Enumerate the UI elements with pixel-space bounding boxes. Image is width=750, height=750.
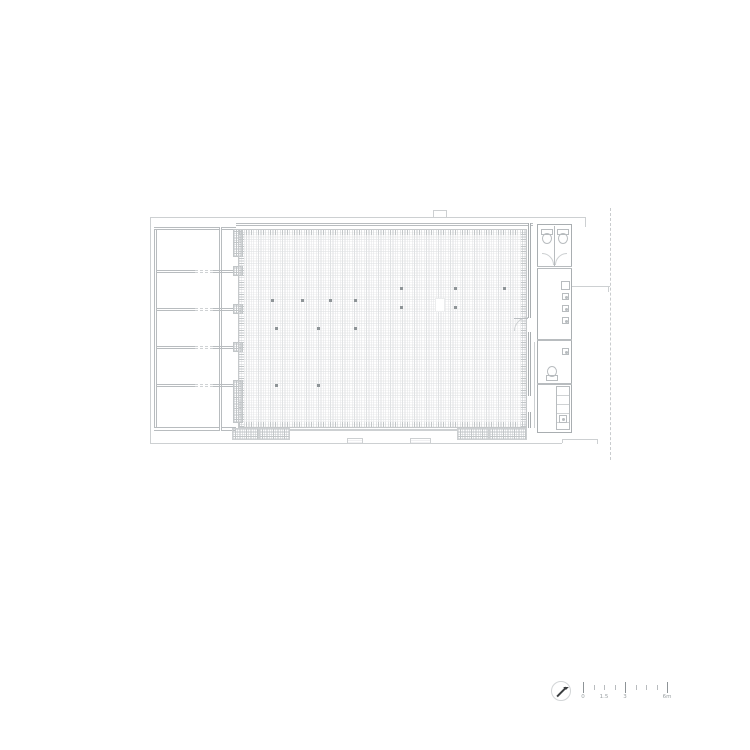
storage-wall [537, 383, 572, 385]
washroom-wall [537, 339, 572, 341]
scale-tick-major [583, 682, 584, 693]
site-outline-bottom-right [562, 439, 597, 440]
toilet-icon [557, 229, 567, 243]
hall-floor-hatch [238, 229, 527, 428]
entry-pad [347, 438, 363, 444]
column-dot [400, 306, 403, 309]
facade-block [457, 428, 489, 440]
facade-block [489, 428, 527, 440]
toilet-icon [548, 367, 558, 381]
column-dot [271, 299, 274, 302]
toilet-icon [541, 229, 551, 243]
scale-tick-minor [604, 685, 605, 690]
north-arrow-icon [551, 681, 571, 701]
scale-tick-major [667, 682, 668, 693]
site-outline-left [150, 217, 151, 443]
wing-right-wall [219, 227, 222, 431]
shelf-unit [556, 386, 570, 430]
sink-icon [562, 317, 569, 324]
column-dot [400, 287, 403, 290]
column-dot [329, 299, 332, 302]
wing-left-wall [154, 227, 157, 431]
column-dot [317, 327, 320, 330]
scale-tick-minor [657, 685, 658, 690]
partition-opening [195, 346, 213, 349]
scale-tick-minor [636, 685, 637, 690]
stall-partition [554, 226, 555, 266]
partition-opening [195, 270, 213, 273]
stall-back-wall [537, 266, 572, 269]
column-dot [454, 306, 457, 309]
scale-label: 3 [623, 694, 627, 700]
scale-tick-minor [646, 685, 647, 690]
partition-opening [195, 384, 213, 387]
facade-block [232, 428, 259, 440]
scale-tick-minor [594, 685, 595, 690]
column-dot [354, 299, 357, 302]
scale-label: 0 [581, 694, 585, 700]
scale-label: 6m [663, 694, 672, 700]
corridor-line [534, 342, 535, 428]
facade-block [259, 428, 290, 440]
partition-wall [157, 384, 233, 387]
partition-wall [157, 346, 233, 349]
column-dot [454, 287, 457, 290]
entry-pad [410, 438, 431, 444]
connector-line [572, 286, 610, 287]
door-leaf [514, 318, 528, 319]
site-outline-right-stub [585, 217, 586, 227]
storage-fixture-icon [559, 415, 567, 423]
hall-east-wall-lower [528, 412, 531, 428]
sink-icon [562, 293, 569, 300]
scale-tick-major [625, 682, 626, 693]
column-dot [317, 384, 320, 387]
hatch-edge-ticks-bottom [239, 422, 526, 427]
skylight-patch [435, 298, 445, 312]
property-line [610, 208, 611, 460]
site-outline-top [150, 217, 586, 218]
partition-wall [157, 308, 233, 311]
floor-plan-canvas: 0 1.5 3 6m [0, 0, 750, 750]
column-dot [275, 384, 278, 387]
hatch-edge-ticks-top [239, 230, 526, 235]
partition-wall [157, 270, 233, 273]
connector-end-tick [608, 286, 609, 292]
scale-label: 1.5 [600, 694, 609, 700]
roof-notch [433, 210, 447, 217]
sink-icon [562, 305, 569, 312]
scale-tick-minor [615, 685, 616, 690]
hatch-edge-ticks-left [239, 230, 244, 427]
partition-opening [195, 308, 213, 311]
site-outline-end-tick [597, 439, 598, 444]
hall-east-wall-middle [528, 332, 531, 396]
column-dot [503, 287, 506, 290]
wing-bottom-wall [154, 427, 236, 431]
wall-box [561, 281, 570, 290]
column-dot [354, 327, 357, 330]
sink-icon [562, 348, 569, 355]
hall-east-wall-upper [528, 223, 531, 318]
wing-top-wall [154, 227, 236, 230]
hall-north-wall [236, 223, 533, 226]
glazing-line [290, 429, 457, 431]
column-dot [275, 327, 278, 330]
column-dot [301, 299, 304, 302]
